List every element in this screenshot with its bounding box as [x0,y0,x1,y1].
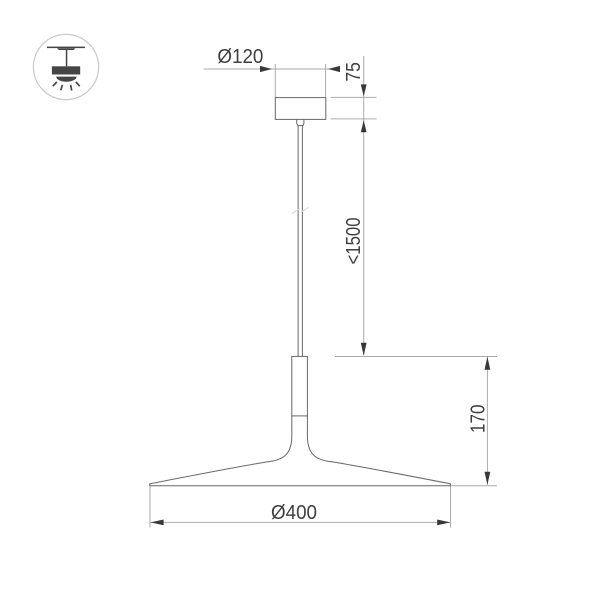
svg-text:75: 75 [343,62,365,82]
svg-text:170: 170 [468,405,490,434]
svg-text:Ø120: Ø120 [217,46,263,68]
svg-text:<1500: <1500 [343,218,365,265]
svg-text:Ø400: Ø400 [271,502,317,524]
